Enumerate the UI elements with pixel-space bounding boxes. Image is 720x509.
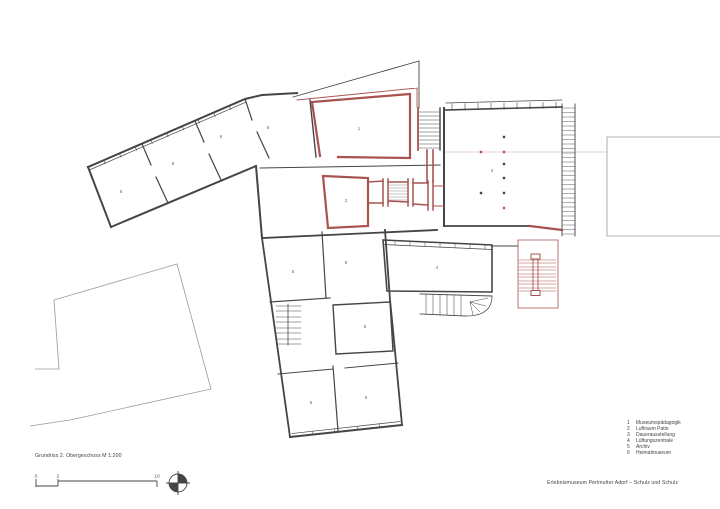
room-label-5a: 5 (292, 269, 295, 275)
drawing-caption: Grundriss 2. Obergeschoss M 1:200 (35, 453, 122, 459)
north-arrow-icon (166, 471, 190, 495)
legend-item-num: 6 (627, 450, 636, 456)
context-buildings (30, 137, 720, 426)
room-label-4: 4 (436, 265, 439, 271)
room-label-5d: 5 (310, 400, 313, 406)
room-label-5c: 5 (364, 324, 367, 330)
external-stair (518, 240, 558, 308)
left-wing (88, 93, 440, 238)
scale-bar: 0 2 10 (35, 474, 160, 488)
room-label-6c: 6 (220, 134, 223, 140)
legend: 1 Museumspädagogik 2 Luftraum Patio 3 Da… (627, 420, 681, 457)
room-label-3: 3 (491, 168, 494, 174)
neighbour-building-left (30, 264, 211, 426)
room-label-5b: 5 (345, 260, 348, 266)
columns-new (480, 151, 505, 209)
room-label-6b: 6 (172, 161, 175, 167)
existing-walls (88, 61, 575, 437)
exhibition-hall (444, 100, 575, 236)
new-construction (297, 88, 562, 308)
room-label-5e: 5 (365, 395, 368, 401)
floor-plan: 1 2 3 4 5 5 5 5 5 6 6 6 6 0 2 10 (0, 0, 720, 509)
neighbour-building-right (607, 137, 720, 236)
legend-item-label: Heimatmuseum (636, 450, 671, 456)
project-title: Erlebnismuseum Perlmutter Adorf – Schulz… (547, 480, 678, 486)
scale-tick-10: 10 (154, 474, 160, 480)
scale-tick-2: 2 (57, 474, 60, 480)
room-1-walls (312, 94, 410, 158)
patio-bridges (368, 179, 444, 210)
room-label-1: 1 (358, 126, 361, 132)
room-label-2: 2 (345, 198, 348, 204)
drawing-sheet: 1 2 3 4 5 5 5 5 5 6 6 6 6 0 2 10 (0, 0, 720, 509)
room-4-walls (383, 240, 518, 292)
room-label-6a: 6 (120, 189, 123, 195)
scale-tick-0: 0 (35, 474, 38, 480)
room-label-6d: 6 (267, 125, 270, 131)
legend-row: 6 Heimatmuseum (627, 450, 681, 456)
columns (480, 136, 505, 194)
